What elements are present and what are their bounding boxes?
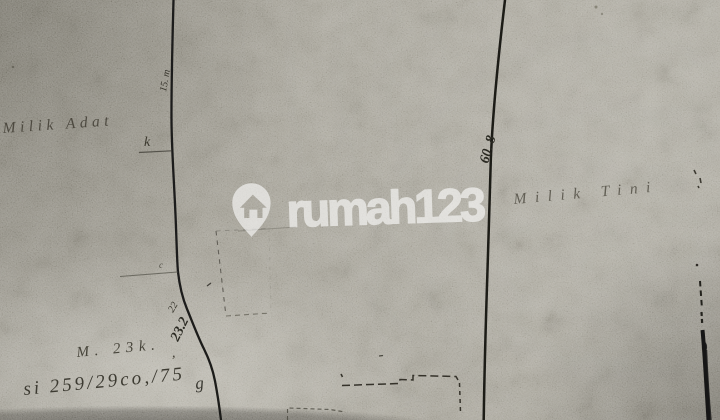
svg-text:,: ,: [172, 346, 176, 361]
svg-text:k: k: [144, 135, 151, 150]
svg-text:g: g: [194, 373, 204, 393]
svg-text:c: c: [159, 260, 163, 270]
svg-text:rumah123: rumah123: [286, 177, 486, 237]
